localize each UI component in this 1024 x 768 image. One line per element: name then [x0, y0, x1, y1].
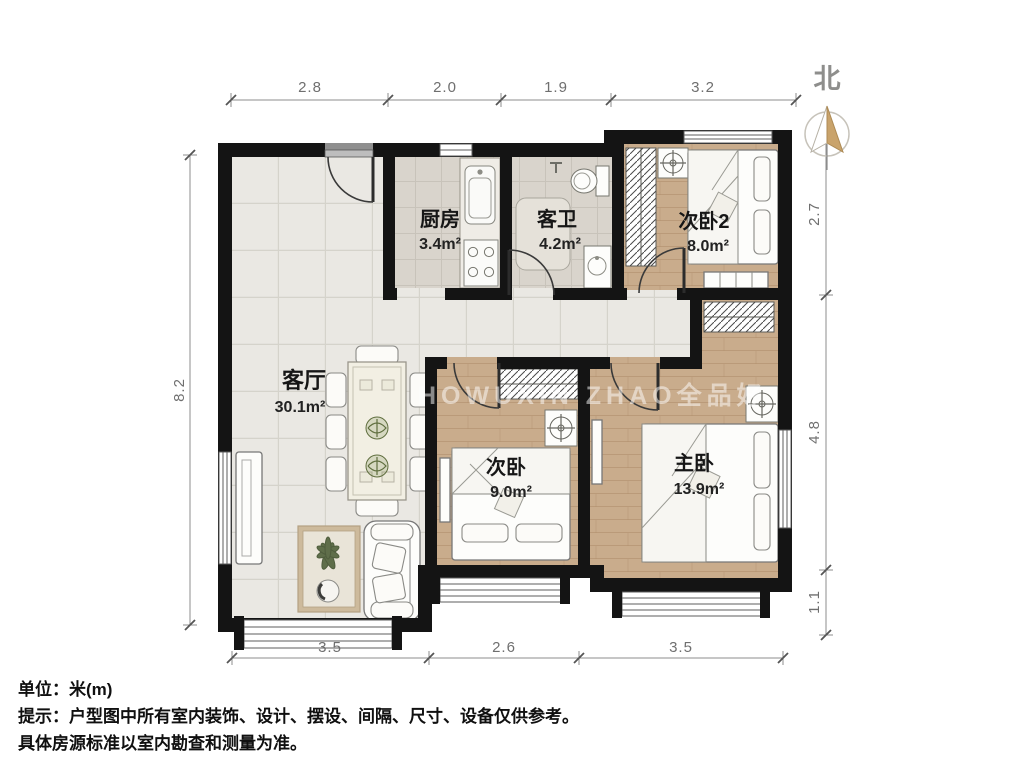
room-label-bath: 客卫 4.2m² [536, 207, 581, 253]
room-label-living: 客厅 30.1m² [275, 368, 326, 416]
room-area: 13.9m² [674, 481, 725, 498]
dim-label: 2.0 [433, 79, 457, 96]
disclaimer-notes: 单位：米(m) 提示：户型图中所有室内装饰、设计、摆设、间隔、尺寸、设备仅供参考… [18, 676, 778, 757]
faucet [477, 169, 482, 174]
dim-label: 3.5 [669, 639, 693, 656]
entry-door-panel [325, 143, 373, 157]
room-name: 主卧 [674, 451, 714, 475]
dim-label: 3.2 [691, 79, 715, 96]
room-area: 4.2m² [539, 236, 581, 253]
dining-chair [356, 346, 398, 364]
dim-label: 4.8 [806, 420, 823, 444]
dim-label: 2.6 [492, 639, 516, 656]
dim-label: 1.1 [806, 590, 823, 614]
dim-label: 2.7 [806, 202, 823, 226]
room-area: 30.1m² [275, 399, 326, 416]
bedroom2-window [684, 131, 772, 143]
dining-chair [326, 373, 346, 407]
pillow [754, 494, 770, 550]
sideboard [236, 452, 262, 564]
place-setting [360, 380, 372, 390]
tv-stand [592, 420, 602, 484]
room-label-bedroom: 次卧 9.0m² [486, 455, 532, 501]
dining-chair [326, 457, 346, 491]
sofa-armrest [371, 602, 413, 618]
pillow [462, 524, 508, 542]
kitchen-window [440, 144, 472, 156]
pillow [754, 210, 770, 254]
dining-chair [356, 498, 398, 516]
room-name: 厨房 [420, 207, 460, 231]
master-side-window [779, 430, 791, 528]
room-area: 9.0m² [490, 484, 532, 501]
sofa-cushion [372, 542, 407, 574]
kitchen-fixtures [460, 158, 500, 288]
room-name: 客厅 [282, 368, 326, 393]
stove [464, 240, 498, 286]
room-name: 客卫 [536, 207, 577, 231]
room-label-kitchen: 厨房 3.4m² [419, 207, 461, 253]
watermark: HOWUXIN ZHAO全品好 [418, 381, 767, 410]
note-tip1: 提示：户型图中所有室内装饰、设计、摆设、间隔、尺寸、设备仅供参考。 [18, 703, 778, 730]
hallway-floor [383, 288, 690, 357]
compass: 北 [805, 64, 849, 170]
ac-unit [545, 410, 577, 446]
living-side-window [219, 452, 231, 564]
sofa-area [298, 521, 420, 621]
sofa-armrest [371, 524, 413, 540]
pillow [516, 524, 562, 542]
master-bay-window [612, 590, 770, 618]
pillow [754, 432, 770, 488]
note-tip2: 具体房源标准以室内勘查和测量为准。 [18, 730, 778, 757]
north-label: 北 [814, 64, 841, 94]
sofa-cushion [372, 573, 406, 604]
dim-right: 2.7 4.8 1.1 [806, 132, 833, 640]
dim-top: 2.8 2.0 1.9 3.2 [226, 79, 801, 107]
dining-chair [326, 415, 346, 449]
note-unit: 单位：米(m) [18, 676, 778, 703]
room-name: 次卧 [486, 455, 526, 479]
washbasin [584, 246, 611, 288]
dim-label: 1.9 [544, 79, 568, 96]
dim-label: 2.8 [298, 79, 322, 96]
bedroom-bay-window [430, 576, 570, 604]
room-area: 8.0m² [687, 238, 729, 255]
floor-plan: HOWUXIN ZHAO全品好 厨房 3.4m² 客卫 4.2m² 次卧2 8.… [0, 0, 1024, 768]
room-name: 次卧2 [678, 209, 729, 233]
dim-label: 8.2 [171, 378, 188, 402]
ac-unit [658, 148, 688, 178]
room-area: 3.4m² [419, 236, 461, 253]
pillow [754, 157, 770, 201]
dim-label: 3.5 [318, 639, 342, 656]
place-setting [382, 380, 394, 390]
tv-stand [440, 458, 450, 522]
toilet [571, 166, 609, 196]
dim-left: 8.2 [171, 150, 197, 630]
